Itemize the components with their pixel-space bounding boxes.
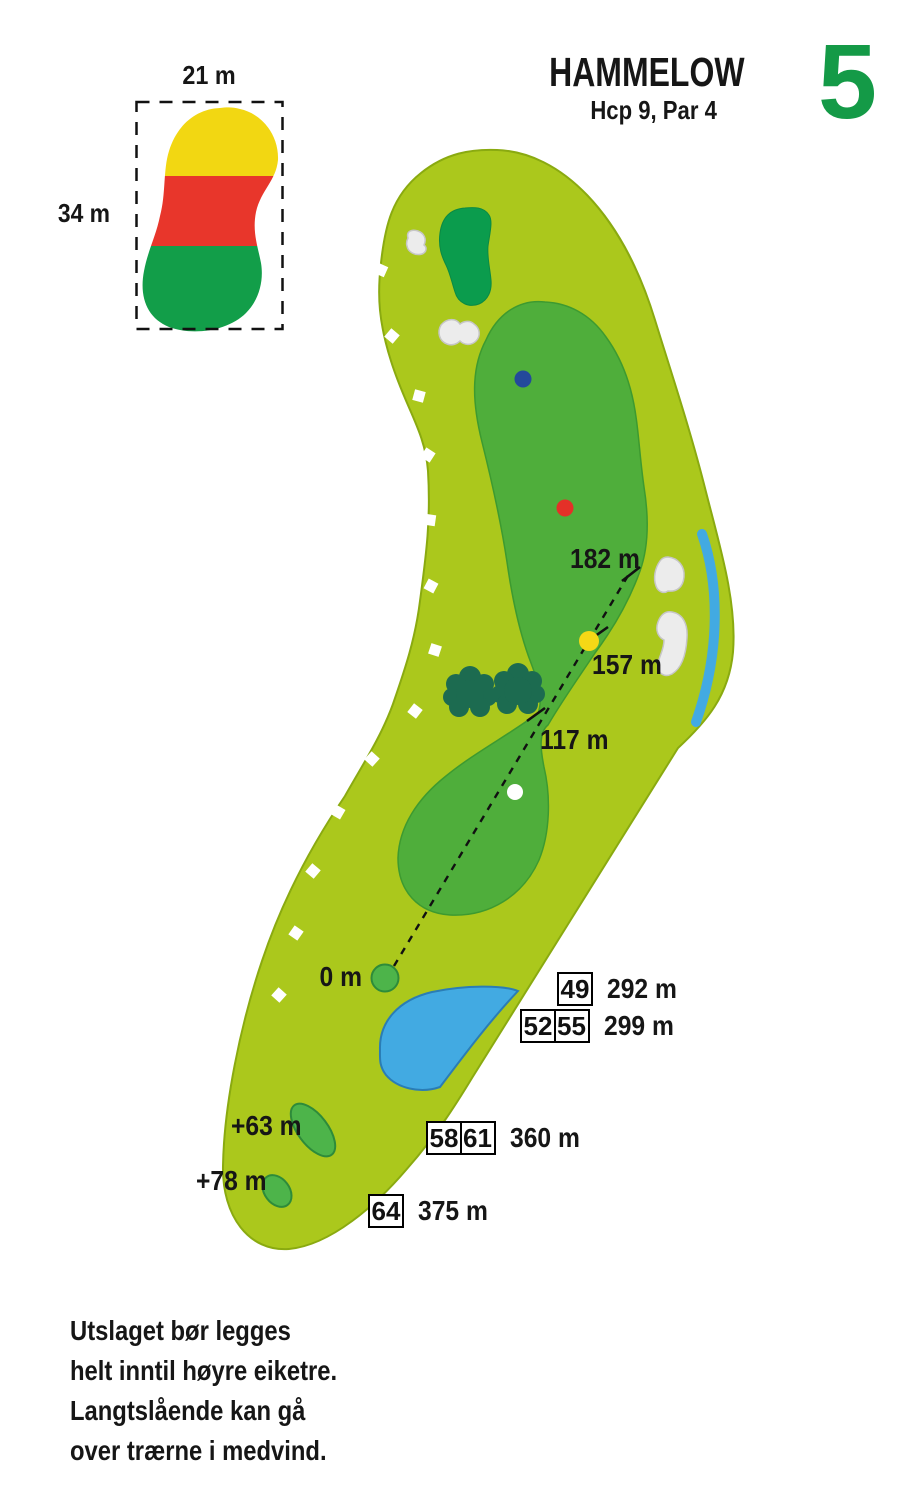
note-line: over trærne i medvind. — [70, 1431, 337, 1471]
green-detail-inset — [130, 100, 292, 334]
bunker-front-of-green — [439, 320, 479, 345]
inset-back-zone — [130, 100, 292, 176]
red-distance-dot — [557, 500, 574, 517]
tee-label-plus63m: +63 m — [231, 1112, 302, 1140]
tee-row-yellow: 49 292 m — [557, 972, 686, 1006]
note-line: Utslaget bør legges — [70, 1311, 337, 1351]
tee-box: 55 — [554, 1009, 590, 1043]
bunker-left-of-green — [407, 230, 426, 254]
hole-number: 5 — [818, 29, 877, 135]
tee-marker-0m — [372, 965, 399, 992]
inset-width-label: 21 m — [143, 62, 274, 88]
hole-advice-note: Utslaget bør legges helt inntil høyre ei… — [70, 1311, 337, 1471]
yellow-distance-dot — [579, 631, 599, 651]
course-guide-page: { "header": { "title": "HAMMELOW", "subt… — [0, 0, 909, 1494]
tee-box: 52 — [520, 1009, 556, 1043]
tee-distance: 375 m — [418, 1195, 488, 1227]
blue-distance-dot — [515, 371, 532, 388]
tee-row-black: 64 375 m — [368, 1194, 497, 1228]
note-line: Langtslående kan gå — [70, 1391, 337, 1431]
bunker-right-round — [655, 557, 685, 592]
tee-box: 61 — [460, 1121, 496, 1155]
tee-box: 58 — [426, 1121, 462, 1155]
distance-label-182m: 182 m — [570, 545, 640, 573]
inset-middle-zone — [130, 176, 292, 246]
page-subtitle: Hcp 9, Par 4 — [590, 97, 717, 123]
tee-label-0m: 0 m — [299, 963, 362, 991]
tee-distance: 292 m — [607, 973, 677, 1005]
hole-map — [0, 0, 909, 1494]
inset-front-zone — [130, 246, 292, 334]
distance-label-117m: 117 m — [540, 726, 609, 754]
tee-label-plus78m: +78 m — [196, 1167, 267, 1195]
tee-row-blue-yellow: 52 55 299 m — [520, 1009, 683, 1043]
page-title: HAMMELOW — [550, 52, 745, 93]
note-line: helt inntil høyre eiketre. — [70, 1351, 337, 1391]
tee-row-white-red: 58 61 360 m — [426, 1121, 589, 1155]
distance-label-157m: 157 m — [592, 651, 662, 679]
tee-box: 49 — [557, 972, 593, 1006]
tee-box: 64 — [368, 1194, 404, 1228]
tee-distance: 360 m — [510, 1122, 580, 1154]
inset-height-label: 34 m — [57, 200, 110, 226]
tee-distance: 299 m — [604, 1010, 674, 1042]
white-distance-dot — [507, 784, 523, 800]
